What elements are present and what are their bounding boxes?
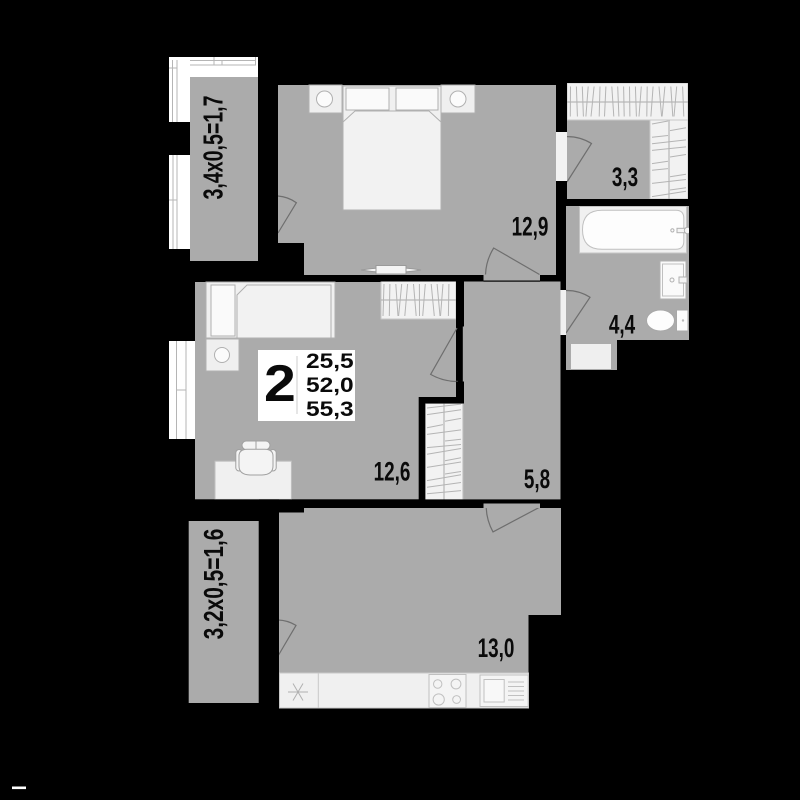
- svg-text:55,3: 55,3: [306, 396, 354, 420]
- svg-text:3,2x0,5=1,6: 3,2x0,5=1,6: [199, 529, 230, 640]
- svg-text:52,0: 52,0: [306, 372, 354, 396]
- svg-text:2: 2: [264, 354, 296, 412]
- svg-text:25,5: 25,5: [306, 348, 354, 372]
- svg-text:3,3: 3,3: [612, 162, 638, 192]
- svg-text:4,4: 4,4: [609, 309, 635, 339]
- svg-text:3,4x0,5=1,7: 3,4x0,5=1,7: [198, 95, 229, 199]
- svg-text:12,6: 12,6: [374, 456, 411, 486]
- svg-text:5,8: 5,8: [524, 464, 550, 494]
- svg-text:13,0: 13,0: [478, 633, 515, 663]
- svg-text:12,9: 12,9: [512, 211, 549, 241]
